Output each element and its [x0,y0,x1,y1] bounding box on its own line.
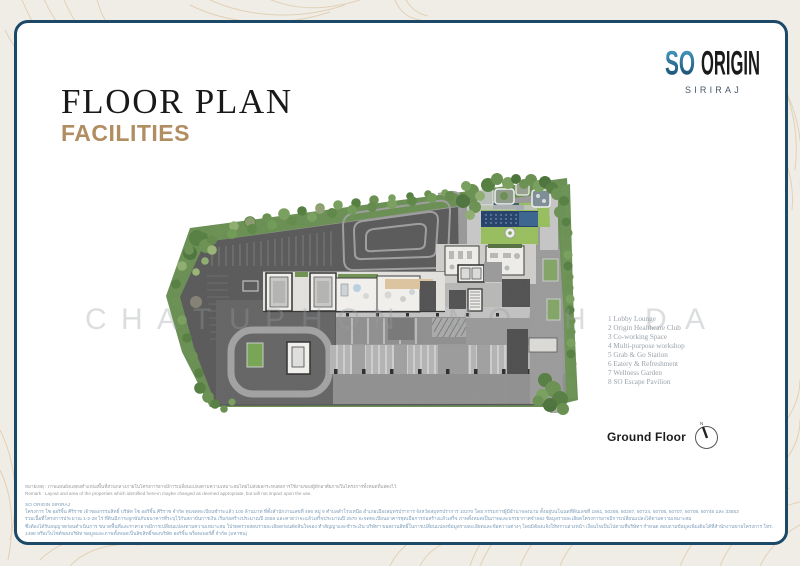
svg-text:H: H [301,303,323,336]
svg-text:N: N [700,421,703,426]
svg-text:H: H [564,303,586,336]
svg-text:C: C [85,303,107,336]
svg-text:C: C [527,303,549,336]
svg-text:O: O [488,303,511,336]
svg-text:A: A [685,303,705,336]
svg-text:O: O [337,303,360,336]
svg-text:U: U [229,303,251,336]
svg-text:P: P [265,303,285,336]
svg-text:A: A [157,303,177,336]
svg-text:T: T [193,303,211,336]
svg-text:H: H [121,303,143,336]
svg-text:M: M [448,303,473,336]
svg-text:N: N [373,303,395,336]
